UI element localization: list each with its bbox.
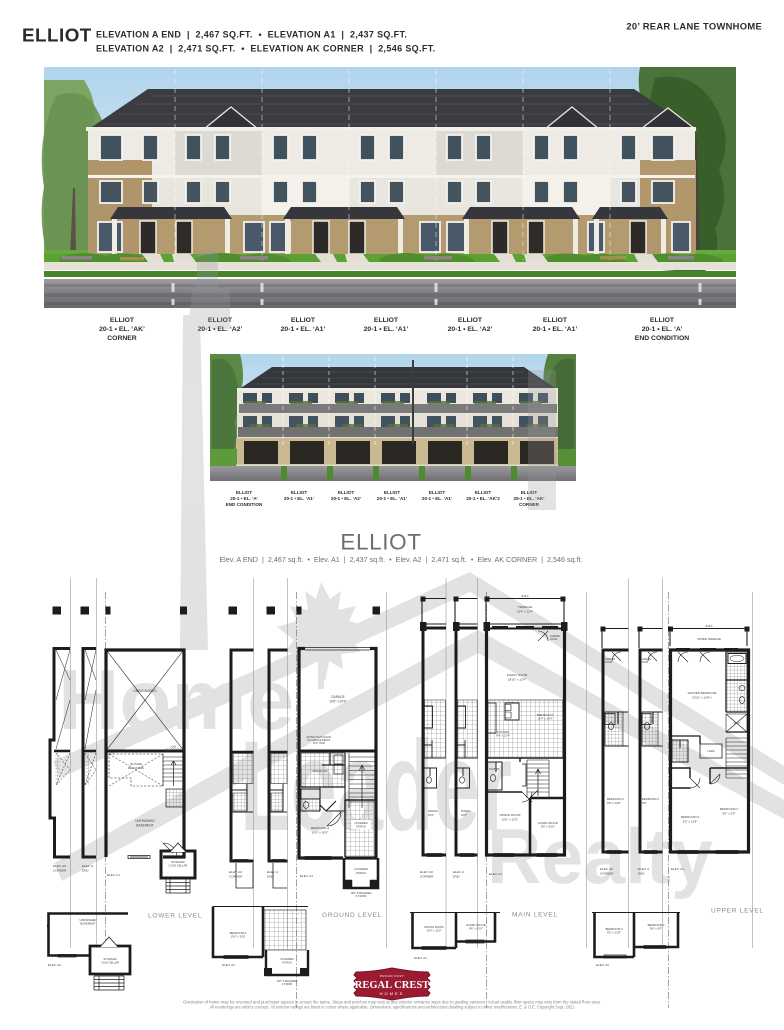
svg-text:ELEV. A1: ELEV. A1 (489, 872, 502, 876)
svg-text:BEDROOM 2: BEDROOM 2 (720, 807, 738, 811)
svg-text:UNEXCAVATED: UNEXCAVATED (133, 689, 157, 693)
svg-text:10'4" x 10'4": 10'4" x 10'4" (537, 717, 552, 721)
svg-text:BASEMENT: BASEMENT (136, 824, 154, 828)
svg-text:ELLIOT: ELLIOT (291, 317, 316, 324)
svg-text:HOMES: HOMES (380, 991, 405, 996)
svg-text:ELLIOT: ELLIOT (291, 490, 308, 495)
svg-text:ELLIOT: ELLIOT (650, 317, 675, 324)
svg-text:9'0" x 12'8": 9'0" x 12'8" (607, 931, 621, 935)
svg-text:20-1 • EL. ‘A1’: 20-1 • EL. ‘A1’ (284, 496, 314, 501)
svg-text:20-1 • EL. ‘A2’: 20-1 • EL. ‘A2’ (331, 496, 361, 501)
svg-text:BEDROOM 4: BEDROOM 4 (311, 826, 329, 830)
svg-text:19'4" x 12'4": 19'4" x 12'4" (517, 610, 533, 614)
svg-text:# STAIRS: # STAIRS (282, 983, 293, 986)
svg-text:END: END (453, 875, 460, 879)
svg-text:UNFINISHED: UNFINISHED (135, 819, 155, 823)
svg-text:CORNER: CORNER (600, 872, 614, 876)
svg-text:8'4" x 12'4": 8'4" x 12'4" (496, 734, 510, 738)
svg-text:10'0" HIGH: 10'0" HIGH (313, 742, 326, 745)
svg-text:DOOR: DOOR (641, 661, 648, 664)
svg-text:ELEV. AK: ELEV. AK (600, 867, 614, 871)
svg-text:END: END (82, 869, 89, 873)
svg-text:20-1 • EL. ‘A1’: 20-1 • EL. ‘A1’ (533, 326, 578, 333)
svg-text:9'0": 9'0" (642, 801, 647, 805)
svg-text:RAILS: RAILS (522, 595, 529, 598)
svg-text:ELEV. A1: ELEV. A1 (300, 874, 313, 878)
svg-text:All renderings are artist’s co: All renderings are artist’s concept. All… (210, 1005, 576, 1010)
svg-text:W.I.C.: W.I.C. (734, 722, 741, 725)
svg-text:20-1 • EL. ‘A1’: 20-1 • EL. ‘A1’ (281, 326, 326, 333)
svg-text:ELLIOT: ELLIOT (458, 317, 483, 324)
svg-text:20-1 • EL. ‘A’: 20-1 • EL. ‘A’ (642, 326, 683, 333)
svg-text:ELEVATION A2 | 2,471 SQ.FT.: ELEVATION A2 | 2,471 SQ.FT. • ELEVATION … (96, 44, 435, 54)
svg-text:DINING ROOM: DINING ROOM (500, 813, 521, 817)
svg-text:ELLIOT: ELLIOT (338, 490, 355, 495)
svg-text:10'0": 10'0" (461, 813, 467, 817)
svg-text:9'6" x 9'0": 9'6" x 9'0" (722, 812, 735, 816)
svg-text:COVERED: COVERED (280, 957, 293, 961)
svg-text:HEADROOM: HEADROOM (165, 748, 180, 752)
svg-text:20-1 • EL. ‘A2’: 20-1 • EL. ‘A2’ (448, 326, 493, 333)
svg-text:END: END (267, 875, 274, 879)
svg-text:END CONDITION: END CONDITION (635, 335, 689, 342)
svg-text:ELEVATION A END | 2,467 SQ.F: ELEVATION A END | 2,467 SQ.FT. • ELEVATI… (96, 30, 407, 40)
svg-text:10'10" x 10'6"+: 10'10" x 10'6"+ (692, 696, 712, 700)
svg-text:REC ROOM): REC ROOM) (128, 766, 144, 770)
svg-text:ELEV. AK: ELEV. AK (229, 870, 243, 874)
svg-text:GARAGE: GARAGE (331, 695, 345, 699)
svg-text:ELLIOT: ELLIOT (340, 530, 421, 555)
svg-text:CORNER: CORNER (229, 875, 243, 879)
svg-text:ELEV. A: ELEV. A (82, 864, 94, 868)
svg-text:8'6" x 9'10": 8'6" x 9'10" (541, 825, 555, 829)
svg-text:BASEMENT: BASEMENT (80, 922, 96, 926)
svg-text:POWDER: POWDER (489, 769, 500, 771)
svg-text:20-1 • EL. ‘A1’: 20-1 • EL. ‘A1’ (364, 326, 409, 333)
svg-text:ELEV. A2: ELEV. A2 (222, 963, 235, 967)
svg-text:MASTER BEDROOM: MASTER BEDROOM (688, 691, 717, 695)
svg-text:ELEV. AK: ELEV. AK (420, 870, 434, 874)
svg-text:FAMILY ROOM: FAMILY ROOM (507, 673, 528, 677)
svg-text:PROUD PAST: PROUD PAST (380, 974, 404, 978)
svg-text:9'6" x 9'0": 9'6" x 9'0" (650, 927, 662, 931)
svg-text:ELLIOT: ELLIOT (236, 490, 253, 495)
svg-text:Elev. A END | 2,467 sq.ft.: Elev. A END | 2,467 sq.ft. • Elev. A1 | … (219, 555, 582, 564)
svg-text:TERRACE: TERRACE (518, 605, 532, 609)
svg-text:MUD ROOM: MUD ROOM (313, 769, 328, 773)
svg-text:ELEV. A1: ELEV. A1 (107, 873, 120, 877)
svg-text:PORCH: PORCH (356, 871, 366, 875)
svg-text:LINEN: LINEN (707, 750, 714, 753)
svg-text:COVERED: COVERED (354, 821, 367, 825)
svg-text:9'0" x 12'8": 9'0" x 12'8" (683, 820, 698, 824)
svg-text:STORAGE/: STORAGE/ (103, 957, 117, 961)
svg-text:STORAGE/: STORAGE/ (171, 860, 185, 864)
svg-text:ELLIOT: ELLIOT (543, 317, 568, 324)
svg-text:8'6" x 9'10": 8'6" x 9'10" (469, 927, 483, 931)
svg-text:ELEV. A: ELEV. A (267, 870, 279, 874)
svg-text:10'0" x 10'0": 10'0" x 10'0" (230, 935, 245, 939)
svg-text:20-1 • EL. ‘AK’2: 20-1 • EL. ‘AK’2 (466, 496, 500, 501)
svg-text:ELEV. A: ELEV. A (453, 870, 465, 874)
svg-text:MAIN LEVEL: MAIN LEVEL (512, 912, 558, 919)
svg-text:PORCH: PORCH (282, 961, 292, 965)
svg-text:ELEV. A2: ELEV. A2 (414, 956, 427, 960)
svg-text:ELLIOT: ELLIOT (110, 317, 135, 324)
svg-text:PORCH: PORCH (356, 825, 366, 829)
svg-text:COLD CELLAR: COLD CELLAR (169, 864, 188, 868)
svg-text:ELEV. A1: ELEV. A1 (671, 867, 684, 871)
svg-text:20’ REAR LANE TOWNHOME: 20’ REAR LANE TOWNHOME (626, 21, 762, 32)
svg-text:RAILS: RAILS (706, 625, 713, 628)
svg-text:9'0" x 12'8": 9'0" x 12'8" (607, 801, 621, 805)
svg-text:10'0" x 10'2": 10'0" x 10'2" (426, 929, 441, 933)
svg-text:UPPER TERRACE: UPPER TERRACE (697, 637, 721, 641)
svg-text:END: END (638, 872, 645, 876)
svg-text:10'0" x 20'0": 10'0" x 20'0" (329, 700, 346, 704)
svg-text:DOOR: DOOR (550, 638, 557, 641)
svg-text:CORNER: CORNER (53, 869, 67, 873)
svg-text:DOOR: DOOR (605, 661, 612, 664)
svg-text:10'0" x 10'0": 10'0" x 10'0" (312, 831, 328, 835)
svg-text:ELEV. A2: ELEV. A2 (596, 963, 609, 967)
svg-text:UPPER LEVEL: UPPER LEVEL (711, 908, 764, 915)
svg-text:CORNER: CORNER (420, 875, 434, 879)
svg-text:ELEV. A2: ELEV. A2 (48, 963, 61, 967)
svg-text:20-1 • EL. ‘A1’: 20-1 • EL. ‘A1’ (422, 496, 452, 501)
svg-text:ELLIOT: ELLIOT (475, 490, 492, 495)
svg-text:20-1 • EL. ‘AK’: 20-1 • EL. ‘AK’ (99, 326, 145, 333)
svg-text:ELLIOT: ELLIOT (429, 490, 446, 495)
svg-text:ELLIOT: ELLIOT (22, 25, 92, 46)
svg-text:10'0": 10'0" (428, 813, 434, 817)
svg-text:GROUND LEVEL: GROUND LEVEL (322, 912, 382, 919)
svg-text:BEDROOM 3: BEDROOM 3 (681, 815, 699, 819)
svg-text:REGAL CREST: REGAL CREST (355, 980, 429, 991)
svg-text:# STAIRS: # STAIRS (356, 895, 367, 898)
svg-text:CORNER: CORNER (107, 335, 137, 342)
svg-text:10'0" x 10'2": 10'0" x 10'2" (502, 818, 518, 822)
svg-text:20-1 • EL. ‘A1’: 20-1 • EL. ‘A1’ (377, 496, 407, 501)
svg-text:ELEV. A: ELEV. A (638, 867, 650, 871)
svg-text:ELLIOT: ELLIOT (384, 490, 401, 495)
svg-text:LOWER LEVEL: LOWER LEVEL (148, 913, 202, 920)
svg-text:20-1 • EL. ‘A’: 20-1 • EL. ‘A’ (230, 496, 257, 501)
svg-text:ELLIOT: ELLIOT (374, 317, 399, 324)
svg-text:COLD CELLAR: COLD CELLAR (101, 961, 119, 965)
svg-text:ELEV. AK: ELEV. AK (53, 864, 67, 868)
svg-text:18'10" x 12'4": 18'10" x 12'4" (508, 678, 526, 682)
svg-text:END CONDITION: END CONDITION (226, 502, 263, 507)
